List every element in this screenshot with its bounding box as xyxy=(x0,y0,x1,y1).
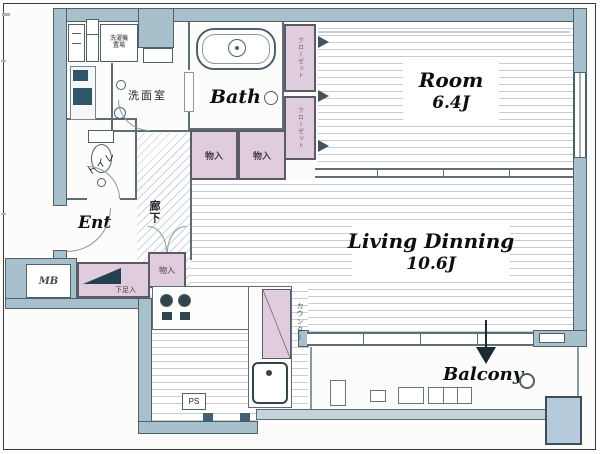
stove-control xyxy=(162,312,172,320)
wall-bottom-left xyxy=(5,298,152,309)
machine-space xyxy=(545,396,582,445)
bath-folding-door xyxy=(184,72,194,112)
refrigerator-space xyxy=(262,289,291,359)
utility-shelf xyxy=(143,48,173,63)
wall-top xyxy=(53,8,587,22)
meter-box: MB xyxy=(26,264,71,298)
wall-mid-vertical xyxy=(138,298,152,434)
balcony-fixture xyxy=(330,380,346,406)
balcony-washer-pan xyxy=(428,387,472,404)
dimension-tick xyxy=(1,213,6,215)
vanity-sink xyxy=(73,88,92,105)
wall-washroom-left xyxy=(111,63,113,132)
hall-storage: 物入 xyxy=(148,252,186,288)
washer-space-label: 洗濯機置場 xyxy=(108,36,130,50)
shelf-box xyxy=(86,19,99,62)
balcony-sliding-door xyxy=(307,332,533,346)
balcony-washer-pan xyxy=(398,387,424,404)
balcony-step xyxy=(203,413,213,422)
vanity-fixture xyxy=(73,70,88,81)
hallway-label: 廊下 xyxy=(146,200,162,224)
balcony-label: Balcony xyxy=(443,364,523,385)
closet-upper-label: クローゼット xyxy=(296,37,305,79)
wall-block-top-left xyxy=(138,8,174,48)
wall-toilet-bottom-left xyxy=(67,198,87,200)
wall-bath-left-upper xyxy=(188,22,190,70)
bath-door-knob xyxy=(264,91,278,105)
hatch-marker-line xyxy=(485,320,487,348)
room-sliding-door xyxy=(315,168,573,178)
closet-door-mark xyxy=(318,36,329,48)
balcony-faucet xyxy=(519,373,535,389)
wall-washroom-bottom xyxy=(111,130,190,132)
water-heater-box xyxy=(68,24,85,62)
room-name: Room xyxy=(419,68,483,93)
shoe-cabinet-wedge xyxy=(83,268,121,284)
kitchen-sink xyxy=(252,362,288,404)
toilet-tank xyxy=(88,130,114,143)
hatch-marker-triangle xyxy=(476,347,496,364)
hall-storage-label: 物入 xyxy=(159,265,175,276)
curtain-rail xyxy=(318,31,570,33)
washer-space: 洗濯機置場 xyxy=(100,24,138,62)
pipe-space-label: PS xyxy=(189,397,200,406)
counter-label: カウンター xyxy=(294,302,304,342)
closet-lower-label: クローゼット xyxy=(296,107,305,149)
dimension-tick xyxy=(2,13,10,16)
wall-bath-left-lower xyxy=(188,112,190,128)
balcony-side-window xyxy=(539,333,565,343)
closet-door-mark xyxy=(318,140,329,152)
bath-label: Bath xyxy=(210,86,261,108)
balcony-fixture xyxy=(370,390,386,402)
stove-control xyxy=(180,312,190,320)
wall-toilet-bottom-right xyxy=(120,198,137,200)
room-size: 6.4J xyxy=(432,93,470,114)
stove-burner xyxy=(178,294,191,307)
closet-lower: クローゼット xyxy=(284,96,316,160)
storage-right-label: 物入 xyxy=(253,149,271,162)
balcony-step xyxy=(240,413,250,422)
storage-right: 物入 xyxy=(238,130,286,180)
storage-left: 物入 xyxy=(190,130,238,180)
living-label-box: Living Dinning 10.6J xyxy=(352,224,510,280)
wall-left-upper xyxy=(53,8,67,206)
room-window xyxy=(574,72,586,158)
wall-bottom-kitchen xyxy=(138,421,258,434)
living-name: Living Dinning xyxy=(348,229,515,254)
closet-door-mark xyxy=(318,90,329,102)
closet-upper: クローゼット xyxy=(284,24,316,92)
stove-burner xyxy=(160,294,173,307)
meter-box-label: MB xyxy=(39,276,59,287)
washroom-fixture-circle xyxy=(116,80,126,90)
dimension-tick xyxy=(1,60,6,62)
wall-toilet-right xyxy=(135,118,137,200)
wall-kitchen-balcony xyxy=(310,347,312,409)
bathtub-drain xyxy=(228,39,246,57)
storage-left-label: 物入 xyxy=(205,149,223,162)
balcony-railing xyxy=(256,409,548,420)
floor-plan: MB PS 洗濯機置場 洗面室 Bath クローゼット xyxy=(0,0,600,454)
shoe-cabinet: 下足入 xyxy=(77,262,150,298)
pipe-space-box: PS xyxy=(182,393,206,410)
living-size: 10.6J xyxy=(406,254,455,275)
room-label-box: Room 6.4J xyxy=(403,60,499,122)
wall-right xyxy=(573,8,587,347)
shoe-cabinet-label: 下足入 xyxy=(115,285,136,295)
